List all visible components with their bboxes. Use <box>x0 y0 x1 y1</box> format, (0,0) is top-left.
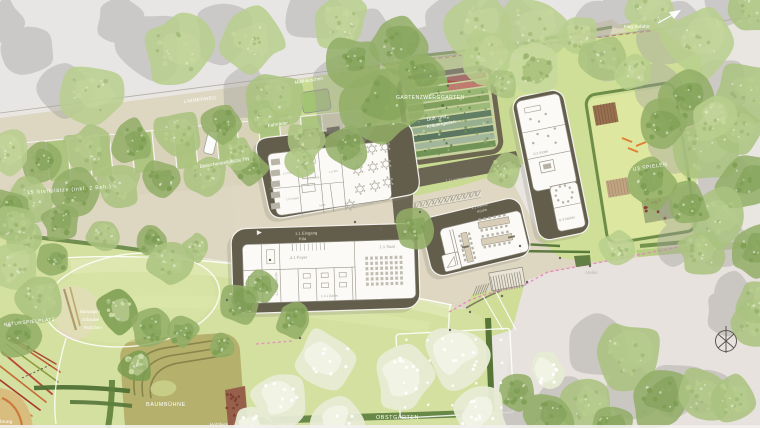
svg-text:1.2.1 Garde.: 1.2.1 Garde. <box>321 294 339 299</box>
svg-text:Lager: Lager <box>319 202 326 207</box>
svg-text:Atelier: Atelier <box>585 270 598 275</box>
svg-text:OBSTGARTEN: OBSTGARTEN <box>376 415 419 421</box>
svg-text:1.1 Saal: 1.1 Saal <box>379 244 395 249</box>
svg-text:GARTENZWERGGARTEN: GARTENZWERGGARTEN <box>396 95 465 101</box>
svg-text:BAUMBÜHNE: BAUMBÜHNE <box>146 401 186 408</box>
svg-text:4.1 Foyer: 4.1 Foyer <box>290 255 308 261</box>
svg-text:Kita: Kita <box>299 236 307 241</box>
svg-text:Bauwagen: Bauwagen <box>80 309 100 314</box>
svg-text:Rutschen: Rutschen <box>84 325 102 330</box>
svg-text:1.1 Eingang: 1.1 Eingang <box>295 230 318 236</box>
svg-text:Schaukel: Schaukel <box>82 317 99 322</box>
svg-text:Fwg Zufahrt: Fwg Zufahrt <box>624 24 650 30</box>
svg-text:hrung: hrung <box>0 419 13 425</box>
